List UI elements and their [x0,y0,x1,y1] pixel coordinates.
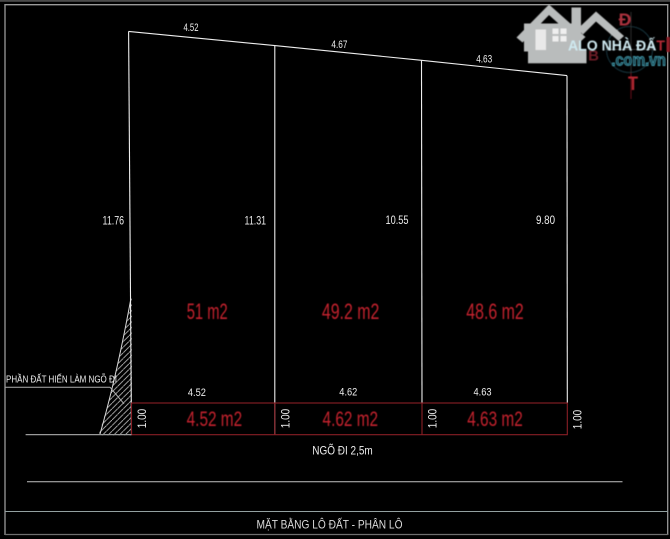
svg-text:4.62 m2: 4.62 m2 [323,407,379,431]
svg-text:T: T [628,74,638,95]
svg-text:.com.vn: .com.vn [612,51,667,70]
svg-text:11.76: 11.76 [103,214,125,228]
svg-text:4.52 m2: 4.52 m2 [187,407,243,431]
svg-text:1.00: 1.00 [571,409,585,429]
svg-text:4.52: 4.52 [184,22,199,34]
svg-text:MẶT BẰNG LÔ ĐẤT - PHÂN LÔ: MẶT BẰNG LÔ ĐẤT - PHÂN LÔ [257,517,403,532]
svg-text:1.00: 1.00 [425,408,439,428]
svg-text:51 m2: 51 m2 [187,299,228,324]
svg-text:4.67: 4.67 [331,39,347,51]
svg-text:11.31: 11.31 [245,214,267,228]
svg-text:48.6 m2: 48.6 m2 [466,299,524,324]
svg-text:NGÕ ĐI 2,5m: NGÕ ĐI 2,5m [312,443,373,458]
svg-text:Đ: Đ [619,9,632,29]
svg-text:4.63 m2: 4.63 m2 [467,407,523,431]
svg-text:9.80: 9.80 [536,213,555,227]
svg-text:4.52: 4.52 [188,387,206,399]
svg-text:49.2 m2: 49.2 m2 [322,299,380,324]
svg-text:1.00: 1.00 [278,408,292,428]
svg-text:4.63: 4.63 [476,53,492,65]
svg-text:1.00: 1.00 [135,408,149,428]
svg-text:PHẦN ĐẤT HIẾN LÀM NGÕ ĐI: PHẦN ĐẤT HIẾN LÀM NGÕ ĐI [6,373,117,386]
svg-text:10.55: 10.55 [386,213,409,227]
svg-text:4.62: 4.62 [339,386,357,398]
svg-text:4.63: 4.63 [474,386,492,398]
